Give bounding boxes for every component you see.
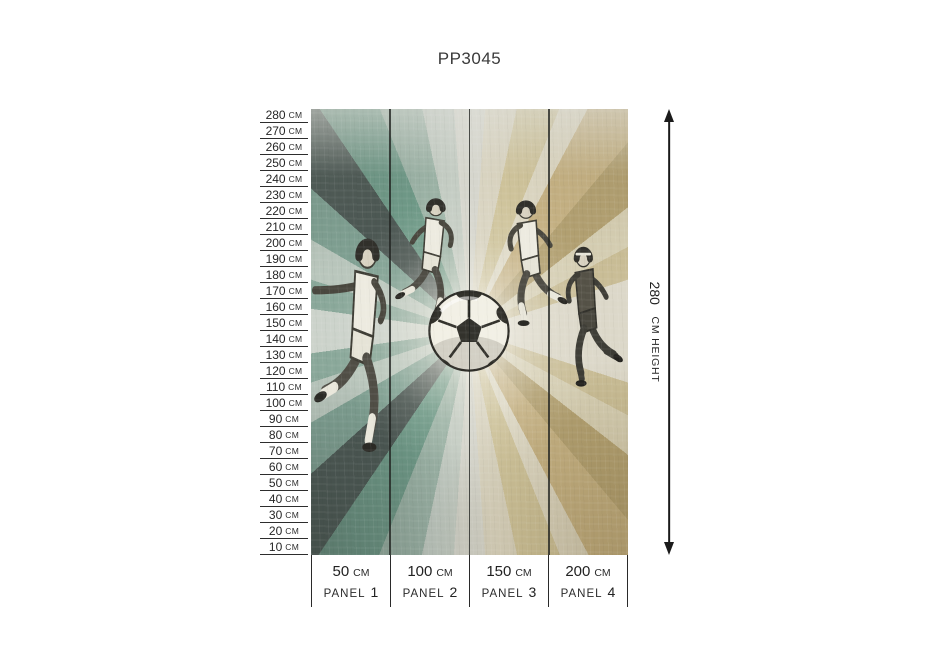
ruler-unit: CM	[285, 478, 299, 488]
ruler-value: 230	[266, 188, 286, 202]
ruler-value: 30	[269, 508, 282, 522]
panel-name-label: PANEL4	[561, 585, 616, 601]
ruler-unit: CM	[289, 110, 303, 120]
ruler-value: 160	[266, 300, 286, 314]
ruler-value: 120	[266, 364, 286, 378]
panel-width-unit: CM	[594, 567, 610, 579]
ruler-unit: CM	[289, 398, 303, 408]
ruler-value: 180	[266, 268, 286, 282]
ruler-value: 210	[266, 220, 286, 234]
ruler-mark-row: 170CM	[260, 283, 308, 299]
ruler-mark-row: 40CM	[260, 491, 308, 507]
height-arrow-line	[668, 116, 670, 548]
panel-width-label: 200CM	[565, 564, 610, 580]
ruler-mark-row: 240CM	[260, 171, 308, 187]
ruler-unit: CM	[289, 350, 303, 360]
ruler-mark-row: 10CM	[260, 539, 308, 555]
ruler-mark-row: 20CM	[260, 523, 308, 539]
ruler-value: 140	[266, 332, 286, 346]
product-code-title: PP3045	[311, 49, 628, 69]
ruler-unit: CM	[285, 446, 299, 456]
panel-word: PANEL	[324, 588, 366, 600]
ruler-value: 200	[266, 236, 286, 250]
ruler-value: 80	[269, 428, 282, 442]
ruler-value: 250	[266, 156, 286, 170]
panel-width-label: 50CM	[332, 564, 369, 580]
ruler-mark-row: 260CM	[260, 139, 308, 155]
ruler-unit: CM	[289, 302, 303, 312]
ruler-value: 220	[266, 204, 286, 218]
panel-width-value: 50	[332, 563, 349, 580]
ruler-value: 40	[269, 492, 282, 506]
panel-word: PANEL	[561, 588, 603, 600]
ruler-unit: CM	[285, 494, 299, 504]
ruler-mark-row: 70CM	[260, 443, 308, 459]
ruler-unit: CM	[289, 366, 303, 376]
panel-seam-1	[389, 109, 391, 555]
mural-preview-image	[311, 109, 628, 555]
ruler-value: 60	[269, 460, 282, 474]
ruler-unit: CM	[288, 382, 302, 392]
ruler-mark-row: 210CM	[260, 219, 308, 235]
ruler-unit: CM	[289, 286, 303, 296]
panel-name-label: PANEL1	[324, 585, 379, 601]
ruler-mark-row: 230CM	[260, 187, 308, 203]
ruler-value: 260	[266, 140, 286, 154]
panel-number: 1	[371, 584, 379, 600]
ruler-unit: CM	[289, 142, 303, 152]
product-dimension-diagram: PP3045 280CM270CM260CM250CM240CM230CM220…	[0, 0, 940, 665]
ruler-mark-row: 100CM	[260, 395, 308, 411]
height-value: 280	[647, 282, 663, 305]
height-unit-label: CM HEIGHT	[649, 316, 661, 382]
panel-label-cell: 200CMPANEL4	[548, 555, 628, 607]
ruler-mark-row: 140CM	[260, 331, 308, 347]
panel-label-cell: 150CMPANEL3	[469, 555, 548, 607]
panel-seam-2	[469, 109, 471, 555]
ruler-unit: CM	[289, 238, 303, 248]
panel-seam-3	[548, 109, 550, 555]
ruler-unit: CM	[285, 542, 299, 552]
panel-width-unit: CM	[436, 567, 452, 579]
panel-name-label: PANEL3	[482, 585, 537, 601]
panel-width-value: 200	[565, 563, 590, 580]
panel-width-value: 100	[407, 563, 432, 580]
ruler-unit: CM	[289, 222, 303, 232]
ruler-mark-row: 80CM	[260, 427, 308, 443]
ruler-unit: CM	[285, 462, 299, 472]
arrow-down-icon	[664, 542, 674, 555]
ruler-mark-row: 60CM	[260, 459, 308, 475]
panel-number: 2	[450, 584, 458, 600]
ruler-mark-row: 250CM	[260, 155, 308, 171]
ruler-mark-row: 120CM	[260, 363, 308, 379]
panel-word: PANEL	[403, 588, 445, 600]
ruler-value: 130	[266, 348, 286, 362]
ruler-unit: CM	[285, 414, 299, 424]
ruler-mark-row: 130CM	[260, 347, 308, 363]
ruler-value: 10	[269, 540, 282, 554]
ruler-unit: CM	[289, 126, 303, 136]
panel-width-label: 150CM	[486, 564, 531, 580]
panel-label-cell: 100CMPANEL2	[390, 555, 469, 607]
ruler-unit: CM	[289, 270, 303, 280]
ruler-value: 100	[266, 396, 286, 410]
height-indicator: 280 CM HEIGHT	[662, 109, 676, 555]
ruler-mark-row: 200CM	[260, 235, 308, 251]
panel-width-unit: CM	[515, 567, 531, 579]
panel-labels: 50CMPANEL1100CMPANEL2150CMPANEL3200CMPAN…	[311, 555, 628, 607]
ruler-mark-row: 90CM	[260, 411, 308, 427]
ruler-unit: CM	[289, 254, 303, 264]
height-label: 280 CM HEIGHT	[647, 282, 663, 383]
ruler-value: 110	[266, 380, 285, 394]
ruler-value: 280	[266, 108, 286, 122]
panel-name-label: PANEL2	[403, 585, 458, 601]
panel-word: PANEL	[482, 588, 524, 600]
ruler-value: 190	[266, 252, 286, 266]
ruler-mark-row: 50CM	[260, 475, 308, 491]
ruler-unit: CM	[289, 334, 303, 344]
ruler-mark-row: 270CM	[260, 123, 308, 139]
panel-width-label: 100CM	[407, 564, 452, 580]
ruler-unit: CM	[289, 174, 303, 184]
ruler-unit: CM	[289, 190, 303, 200]
ruler-value: 240	[266, 172, 286, 186]
ruler-mark-row: 30CM	[260, 507, 308, 523]
panel-number: 4	[608, 584, 616, 600]
ruler-unit: CM	[289, 158, 303, 168]
panel-width-unit: CM	[353, 567, 369, 579]
ruler-unit: CM	[289, 206, 303, 216]
panel-number: 3	[529, 584, 537, 600]
ruler-mark-row: 190CM	[260, 251, 308, 267]
ruler-mark-row: 180CM	[260, 267, 308, 283]
ruler-value: 90	[269, 412, 282, 426]
ruler-value: 170	[266, 284, 286, 298]
ruler-unit: CM	[289, 318, 303, 328]
panel-label-cell: 50CMPANEL1	[311, 555, 390, 607]
ruler-mark-row: 280CM	[260, 107, 308, 123]
ruler-mark-row: 160CM	[260, 299, 308, 315]
ruler-value: 150	[266, 316, 286, 330]
ruler-value: 50	[269, 476, 282, 490]
ruler-unit: CM	[285, 526, 299, 536]
ruler-value: 20	[269, 524, 282, 538]
panel-width-value: 150	[486, 563, 511, 580]
ruler-mark-row: 110CM	[260, 379, 308, 395]
ruler-value: 70	[269, 444, 282, 458]
ruler-mark-row: 220CM	[260, 203, 308, 219]
ruler-unit: CM	[285, 430, 299, 440]
ruler-value: 270	[266, 124, 286, 138]
height-ruler: 280CM270CM260CM250CM240CM230CM220CM210CM…	[260, 107, 308, 555]
ruler-unit: CM	[285, 510, 299, 520]
ruler-mark-row: 150CM	[260, 315, 308, 331]
